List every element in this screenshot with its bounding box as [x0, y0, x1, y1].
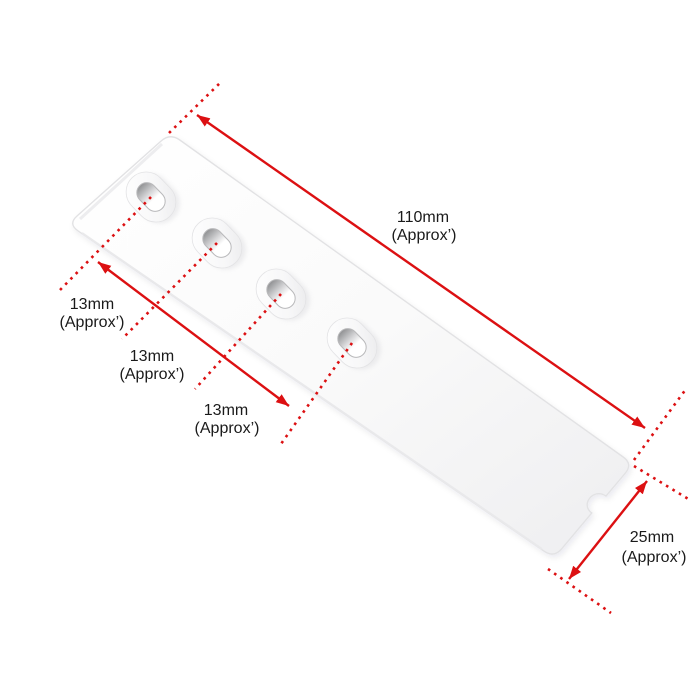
- spacing2-qualifier-label: (Approx’): [120, 366, 185, 383]
- width-value-label: 25mm: [630, 529, 674, 546]
- diagram-stage: 110mm (Approx’) 13mm (Approx’) 13mm (App…: [0, 0, 700, 700]
- length-qualifier-label: (Approx’): [392, 227, 457, 244]
- extension-line-width-top: [634, 466, 690, 500]
- dimension-diagram-canvas: 110mm (Approx’) 13mm (Approx’) 13mm (App…: [0, 0, 700, 700]
- spacing3-value-label: 13mm: [204, 402, 248, 419]
- spacing1-value-label: 13mm: [70, 296, 114, 313]
- spacing3-qualifier-label: (Approx’): [195, 420, 260, 437]
- length-value-label: 110mm: [397, 209, 449, 226]
- spacing1-qualifier-label: (Approx’): [60, 314, 125, 331]
- width-qualifier-label: (Approx’): [622, 549, 687, 566]
- spacing2-value-label: 13mm: [130, 348, 174, 365]
- product-strip: [73, 137, 629, 554]
- extension-line-width-bottom: [548, 569, 611, 613]
